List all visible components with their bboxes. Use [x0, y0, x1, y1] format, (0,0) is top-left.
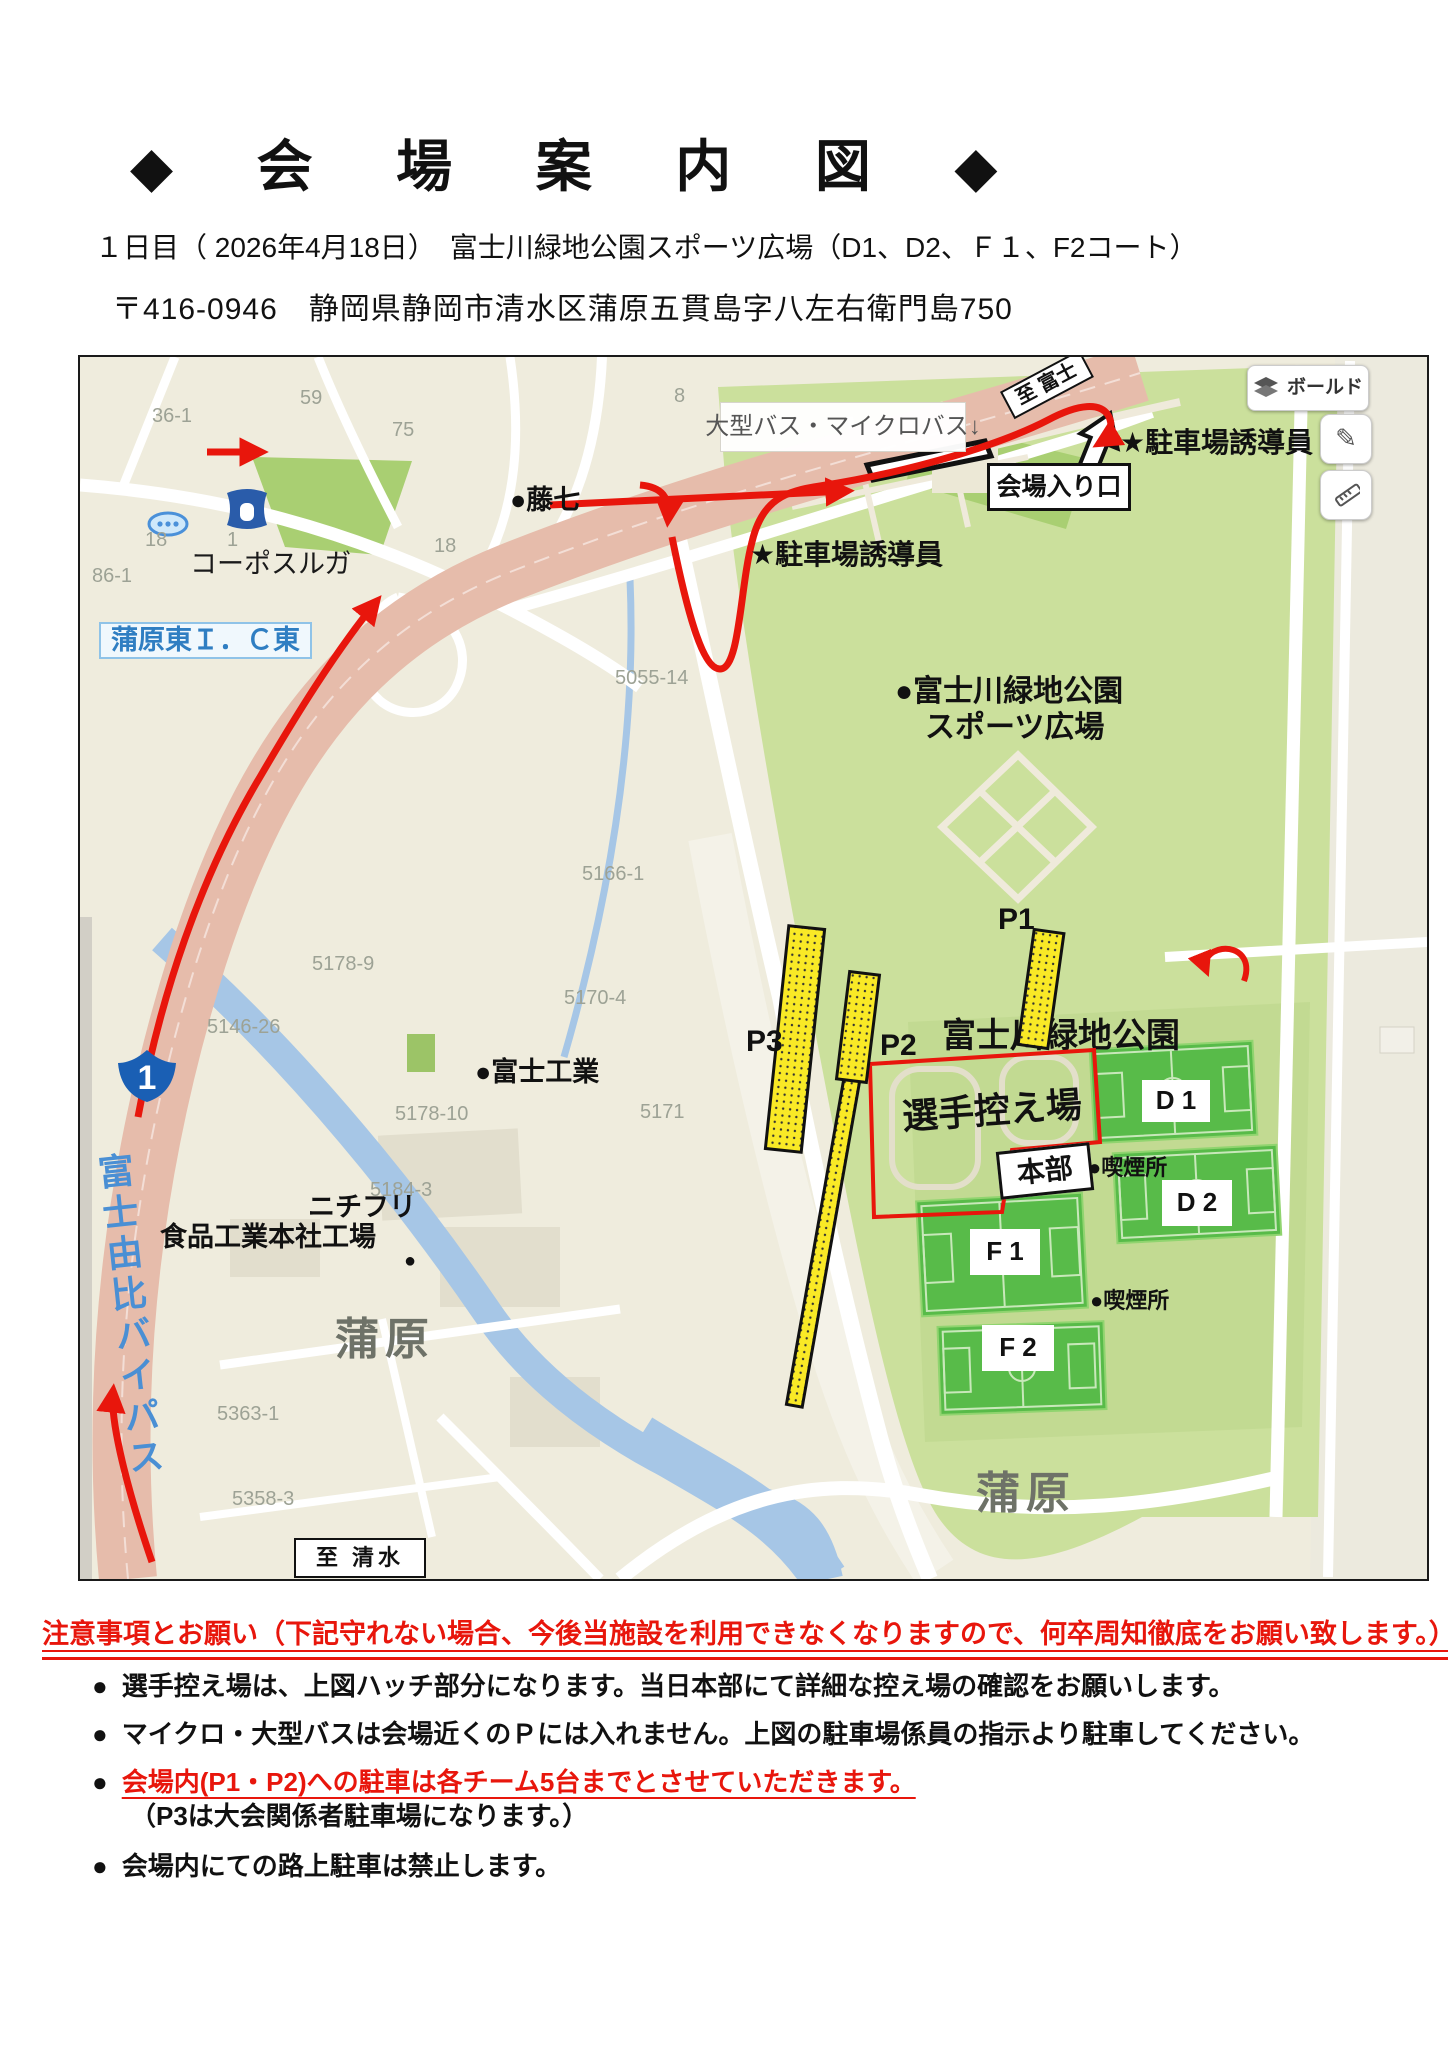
- parcel-number: 5170-4: [564, 987, 626, 1010]
- parking-p3-label: P3: [746, 1025, 783, 1060]
- note-subtext: （P3は大会関係者駐車場になります。）: [130, 1796, 588, 1833]
- smoking-area-label-1: ●喫煙所: [1088, 1155, 1167, 1180]
- bullet-dot: ●: [92, 1767, 108, 1797]
- draw-tool-button[interactable]: ✎: [1320, 414, 1372, 464]
- court-d1-label: D 1: [1142, 1080, 1210, 1122]
- parcel-number: 36-1: [152, 405, 192, 428]
- parcel-number: 18: [434, 535, 456, 558]
- court-f2-label: F 2: [982, 1325, 1054, 1371]
- venue-address: 〒416-0946 静岡県静岡市清水区蒲原五貫島字八左右衛門島750: [112, 284, 1013, 328]
- event-day-line: １日目（ 2026年4月18日） 富士川緑地公園スポーツ広場（D1、D2、Ｆ１、…: [95, 226, 1198, 266]
- parking-staff-label-mid: ★駐車場誘導員: [750, 539, 943, 571]
- parcel-number: 5358-3: [232, 1488, 294, 1511]
- smoking-area-label-2: ●喫煙所: [1090, 1288, 1169, 1313]
- landmark-icon: [227, 489, 267, 529]
- note-item: ●会場内(P1・P2)への駐車は各チーム5台までとさせていただきます。: [92, 1762, 916, 1799]
- kambara-label-south: 蒲原: [976, 1469, 1076, 1520]
- layers-icon: [1253, 376, 1279, 400]
- note-item: ●選手控え場は、上図ハッチ部分になります。当日本部にて詳細な控え場の確認をお願い…: [92, 1666, 1235, 1703]
- bus-route-note: 大型バス・マイクロバス↓: [720, 402, 966, 452]
- fuji-kogyo-label: ●富士工業: [475, 1057, 599, 1088]
- hq-label: 本部: [996, 1142, 1095, 1200]
- notes-heading: 注意事項とお願い（下記守れない場合、今後当施設を利用できなくなりますので、何卒周…: [42, 1612, 1448, 1660]
- parcel-number: 5055-14: [615, 667, 688, 690]
- nichifuri-marker-dot: ●: [404, 1250, 416, 1273]
- note-item: ●会場内にての路上駐車は禁止します。: [92, 1846, 561, 1883]
- page-title: ◆ 会 場 案 内 図 ◆: [130, 122, 1031, 203]
- parcel-number: 5166-1: [582, 863, 644, 886]
- parcel-number: 5146-26: [207, 1016, 280, 1039]
- fujishichi-label: ●藤七: [510, 485, 580, 516]
- note-text-emphasis: 会場内(P1・P2)への駐車は各チーム5台までとさせていただきます。: [122, 1767, 916, 1797]
- parcel-number: 75: [392, 419, 414, 442]
- measure-tool-button[interactable]: [1320, 470, 1372, 520]
- note-text: 選手控え場は、上図ハッチ部分になります。当日本部にて詳細な控え場の確認をお願いし…: [122, 1671, 1235, 1701]
- nichifuri-label-line1: ニチフリ: [160, 1192, 416, 1223]
- to-shimizu-sign: 至 清水: [294, 1538, 426, 1578]
- parcel-number: 5363-1: [217, 1403, 279, 1426]
- parcel-number: 5178-9: [312, 953, 374, 976]
- venue-map: 富士川緑地公園: [78, 355, 1429, 1581]
- court-f1-label: F 1: [970, 1229, 1040, 1275]
- parcel-number: 5171: [640, 1101, 685, 1124]
- bullet-dot: ●: [92, 1851, 108, 1881]
- court-d2-label: D 2: [1162, 1180, 1232, 1226]
- parcel-number: 18: [145, 529, 167, 552]
- bullet-dot: ●: [92, 1719, 108, 1749]
- note-text: 会場内にての路上駐車は禁止します。: [122, 1851, 561, 1881]
- parcel-number: 5178-10: [395, 1103, 468, 1126]
- ruler-icon: [1332, 481, 1360, 509]
- map-style-button[interactable]: ボールド: [1247, 365, 1369, 411]
- bullet-dot: ●: [92, 1671, 108, 1701]
- parking-p2-label: P2: [880, 1029, 917, 1064]
- parking-p1-label: P1: [998, 903, 1035, 938]
- park-label-center: 富士川緑地公園: [942, 1016, 1180, 1055]
- parcel-number: 86-1: [92, 565, 132, 588]
- nichifuri-label-line2: 食品工業本社工場: [160, 1222, 376, 1253]
- pencil-icon: ✎: [1335, 424, 1357, 454]
- parcel-number: 59: [300, 387, 322, 410]
- note-text: マイクロ・大型バスは会場近くのＰには入れません。上図の駐車場係員の指示より駐車し…: [122, 1719, 1315, 1749]
- svg-text:1: 1: [138, 1059, 157, 1097]
- venue-guide-page: ◆ 会 場 案 内 図 ◆ １日目（ 2026年4月18日） 富士川緑地公園スポ…: [0, 0, 1448, 2048]
- ic-label: 蒲原東Ｉ．Ｃ東: [99, 622, 312, 659]
- parking-staff-label-top: ★駐車場誘導員: [1120, 427, 1313, 459]
- park-label-line1: ●富士川緑地公園: [895, 675, 1123, 710]
- parcel-number: 8: [674, 385, 685, 408]
- park-label-line2: スポーツ広場: [925, 711, 1104, 746]
- corpo-suruga-label: コーポスルガ: [190, 549, 351, 580]
- venue-entrance-label: 会場入り口: [987, 463, 1131, 511]
- note-item: ●マイクロ・大型バスは会場近くのＰには入れません。上図の駐車場係員の指示より駐車…: [92, 1714, 1314, 1751]
- map-style-label: ボールド: [1287, 377, 1363, 399]
- kambara-label-west: 蒲原: [335, 1315, 435, 1366]
